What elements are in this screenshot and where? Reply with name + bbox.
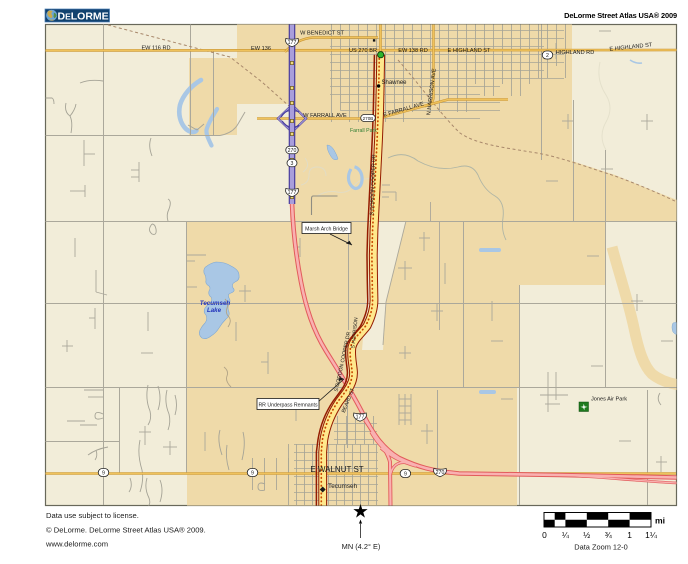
svg-text:9: 9 <box>102 470 105 476</box>
svg-text:© DeLorme. DeLorme Street Atla: © DeLorme. DeLorme Street Atlas USA® 200… <box>46 526 206 535</box>
svg-text:Lake: Lake <box>207 307 222 314</box>
svg-text:W BENEDICT ST: W BENEDICT ST <box>300 31 344 37</box>
svg-text:US 270 BR: US 270 BR <box>349 48 377 54</box>
svg-text:DELORME: DELORME <box>58 10 109 22</box>
svg-text:2: 2 <box>546 53 549 59</box>
svg-text:HIGHLAND RD: HIGHLAND RD <box>556 50 595 56</box>
svg-text:177: 177 <box>288 190 297 196</box>
svg-text:Shawnee: Shawnee <box>382 80 408 86</box>
svg-text:Tecumseh: Tecumseh <box>200 300 231 307</box>
svg-text:177: 177 <box>288 40 297 46</box>
svg-text:177: 177 <box>356 415 365 421</box>
svg-text:www.delorme.com: www.delorme.com <box>45 540 108 549</box>
svg-text:Jones Air Park: Jones Air Park <box>591 397 627 403</box>
svg-text:¼: ¼ <box>562 530 570 540</box>
svg-text:0: 0 <box>542 530 547 540</box>
svg-text:EW 116 RD: EW 116 RD <box>141 46 170 52</box>
svg-text:DeLorme Street Atlas USA® 2009: DeLorme Street Atlas USA® 2009 <box>564 11 677 20</box>
svg-text:Marsh Arch Bridge: Marsh Arch Bridge <box>305 227 348 233</box>
svg-text:EW 136: EW 136 <box>251 46 271 52</box>
svg-text:¾: ¾ <box>605 530 613 540</box>
svg-text:MN (4.2° E): MN (4.2° E) <box>342 542 381 551</box>
svg-text:E WALNUT ST: E WALNUT ST <box>310 465 363 474</box>
svg-text:RR Underpass Remnants: RR Underpass Remnants <box>258 403 318 409</box>
svg-text:270: 270 <box>436 470 445 476</box>
svg-text:W FARRALL AVE: W FARRALL AVE <box>303 113 347 119</box>
svg-text:mi: mi <box>655 516 665 526</box>
svg-text:EW 138 RD: EW 138 RD <box>398 48 428 54</box>
svg-text:Tecumseh: Tecumseh <box>328 483 358 490</box>
svg-text:270: 270 <box>288 148 297 154</box>
svg-text:3: 3 <box>291 161 294 167</box>
svg-text:270B: 270B <box>363 116 374 121</box>
svg-text:½: ½ <box>583 530 590 540</box>
svg-text:9: 9 <box>251 470 254 476</box>
svg-text:1¼: 1¼ <box>645 530 658 540</box>
svg-text:Data use subject to license.: Data use subject to license. <box>46 511 139 520</box>
svg-text:Data Zoom 12-0: Data Zoom 12-0 <box>574 543 627 552</box>
svg-text:Farrall Park: Farrall Park <box>350 128 377 134</box>
svg-text:9: 9 <box>404 471 407 477</box>
svg-text:1: 1 <box>627 530 632 540</box>
svg-text:E HIGHLAND ST: E HIGHLAND ST <box>448 48 491 54</box>
